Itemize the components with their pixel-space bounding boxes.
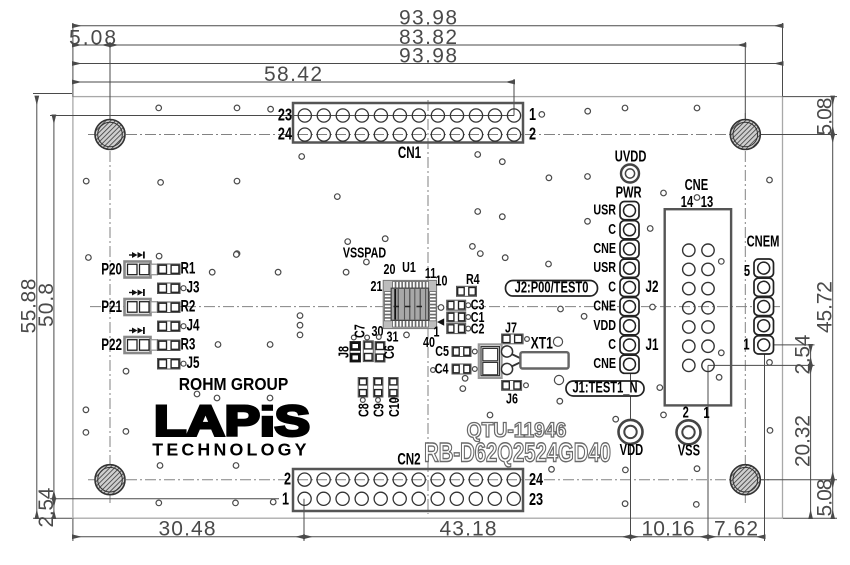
svg-text:LAPIS: LAPIS [154, 398, 310, 446]
svg-text:VSS: VSS [678, 442, 700, 459]
svg-text:1: 1 [529, 105, 536, 125]
svg-text:C2: C2 [471, 320, 485, 337]
svg-text:R3: R3 [181, 335, 196, 353]
svg-text:P21: P21 [101, 297, 122, 315]
svg-text:C6: C6 [380, 345, 397, 359]
svg-text:C5: C5 [435, 342, 449, 359]
svg-text:93.98: 93.98 [399, 44, 457, 67]
svg-text:J1: J1 [646, 335, 659, 353]
svg-text:23: 23 [278, 106, 292, 126]
svg-text:J4: J4 [187, 316, 200, 334]
svg-text:2: 2 [683, 404, 689, 421]
svg-text:C4: C4 [435, 360, 449, 377]
svg-text:R2: R2 [181, 297, 196, 315]
svg-text:J7: J7 [505, 319, 517, 336]
svg-text:24: 24 [529, 470, 543, 490]
svg-text:CN1: CN1 [398, 143, 421, 161]
svg-text:43.18: 43.18 [440, 517, 497, 540]
svg-text:J2:P00/TEST0: J2:P00/TEST0 [515, 279, 589, 296]
svg-text:40: 40 [423, 333, 435, 350]
svg-text:C: C [608, 278, 616, 295]
svg-text:1: 1 [743, 336, 750, 353]
svg-text:20: 20 [384, 260, 396, 277]
svg-text:CNE: CNE [593, 239, 616, 256]
svg-text:7.62: 7.62 [714, 517, 758, 540]
svg-text:CNEM: CNEM [747, 233, 780, 250]
svg-text:10: 10 [436, 272, 448, 289]
svg-text:CN2: CN2 [397, 450, 420, 468]
svg-text:C: C [608, 220, 616, 237]
svg-text:20.32: 20.32 [791, 415, 814, 467]
svg-text:PWR: PWR [616, 184, 642, 201]
svg-text:2: 2 [529, 125, 536, 145]
svg-text:C10: C10 [385, 397, 402, 417]
svg-text:J3: J3 [187, 278, 200, 296]
svg-text:USR: USR [593, 258, 616, 275]
svg-text:50.8: 50.8 [35, 283, 58, 327]
svg-text:XT1: XT1 [531, 335, 553, 353]
svg-text:J2: J2 [646, 277, 659, 295]
svg-text:2.54: 2.54 [35, 487, 58, 527]
svg-text:1: 1 [282, 490, 289, 510]
svg-text:58.42: 58.42 [264, 63, 322, 86]
svg-text:P20: P20 [101, 260, 122, 278]
svg-text:30.48: 30.48 [159, 517, 216, 540]
svg-text:CNE: CNE [593, 297, 616, 314]
svg-text:U1: U1 [402, 258, 416, 275]
svg-text:P22: P22 [101, 335, 122, 353]
svg-text:J1:TEST1_N: J1:TEST1_N [572, 379, 637, 396]
svg-text:J8: J8 [335, 346, 352, 358]
svg-text:24: 24 [278, 125, 292, 145]
svg-text:R1: R1 [181, 259, 196, 277]
svg-text:RB-D62Q2524GD40: RB-D62Q2524GD40 [424, 438, 611, 469]
svg-text:10.16: 10.16 [642, 517, 695, 540]
svg-text:5.08: 5.08 [814, 98, 837, 136]
svg-text:CNE: CNE [685, 176, 709, 193]
svg-text:CNE: CNE [593, 354, 616, 371]
svg-text:J6: J6 [506, 390, 518, 407]
svg-text:14: 14 [681, 193, 694, 210]
svg-text:1: 1 [703, 404, 710, 421]
svg-text:R4: R4 [466, 270, 480, 287]
svg-text:5.08: 5.08 [69, 26, 116, 49]
svg-text:UVDD: UVDD [615, 148, 647, 165]
svg-text:J5: J5 [187, 353, 200, 371]
svg-text:TECHNOLOGY: TECHNOLOGY [152, 440, 309, 460]
svg-text:ROHM GROUP: ROHM GROUP [179, 374, 289, 394]
svg-text:21: 21 [371, 277, 383, 294]
svg-text:USR: USR [593, 201, 616, 218]
svg-text:5: 5 [744, 262, 751, 279]
svg-text:VDD: VDD [593, 316, 616, 333]
svg-text:45.72: 45.72 [814, 281, 837, 333]
svg-text:2: 2 [284, 470, 291, 490]
svg-text:VSSPAD: VSSPAD [343, 244, 386, 261]
svg-text:VDD: VDD [620, 441, 644, 458]
svg-text:C: C [608, 335, 616, 352]
svg-text:23: 23 [529, 490, 543, 510]
svg-text:31: 31 [387, 328, 399, 345]
svg-text:13: 13 [701, 193, 714, 210]
svg-text:11: 11 [425, 264, 436, 281]
svg-text:5.08: 5.08 [814, 479, 837, 517]
